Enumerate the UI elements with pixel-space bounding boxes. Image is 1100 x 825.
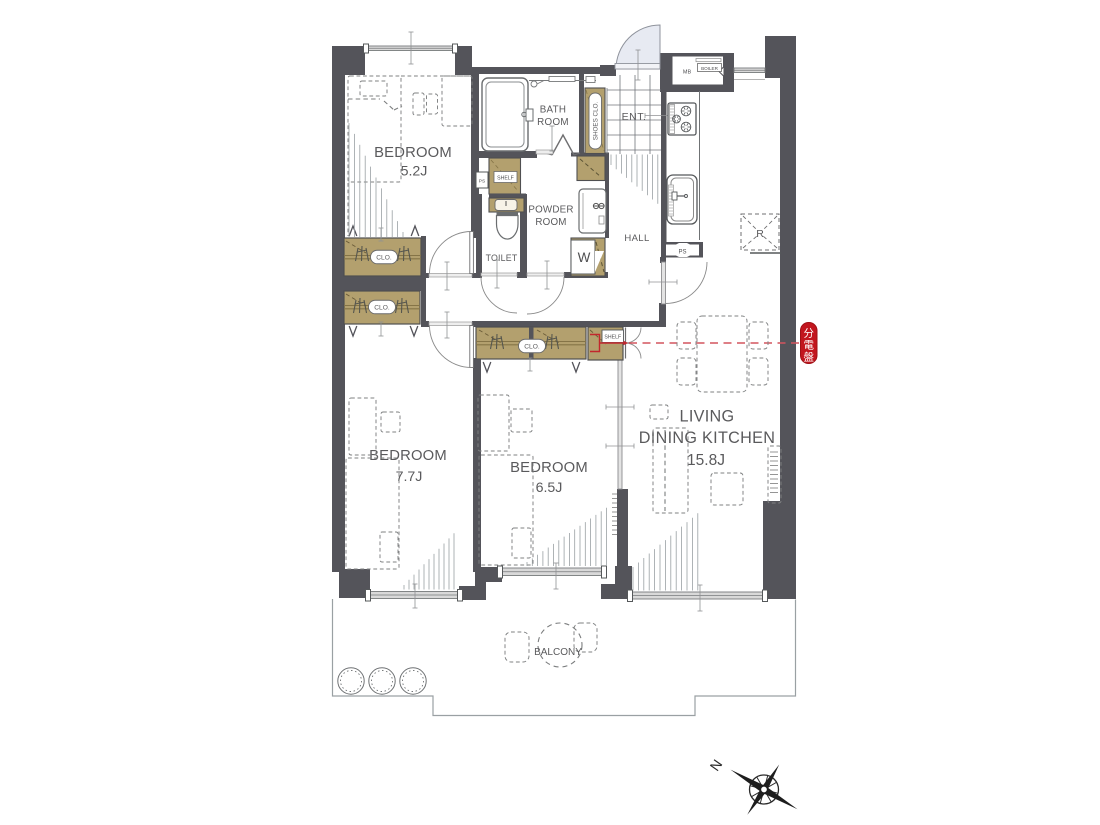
svg-text:7.7J: 7.7J <box>396 469 423 485</box>
svg-text:SHELF: SHELF <box>604 335 621 341</box>
svg-text:DINING KITCHEN: DINING KITCHEN <box>639 429 775 447</box>
svg-text:MB: MB <box>683 70 692 76</box>
svg-text:BEDROOM: BEDROOM <box>369 448 447 464</box>
svg-text:BATH: BATH <box>540 105 567 116</box>
svg-text:PS: PS <box>479 179 485 185</box>
svg-text:5.2J: 5.2J <box>401 164 428 180</box>
svg-text:R: R <box>756 228 764 240</box>
svg-text:SHELF: SHELF <box>497 176 514 182</box>
svg-text:CLO.: CLO. <box>376 254 392 261</box>
svg-text:盤: 盤 <box>804 351 815 364</box>
svg-text:6.5J: 6.5J <box>536 480 563 496</box>
svg-text:BEDROOM: BEDROOM <box>374 145 452 161</box>
svg-text:POWDER: POWDER <box>528 205 573 216</box>
svg-text:BALCONY: BALCONY <box>534 647 582 658</box>
svg-text:SHOES CLO.: SHOES CLO. <box>593 102 600 141</box>
svg-text:ENT.: ENT. <box>622 111 647 123</box>
svg-text:TOILET: TOILET <box>486 253 518 263</box>
svg-text:PS: PS <box>678 250 686 256</box>
svg-text:LIVING: LIVING <box>680 408 735 426</box>
svg-text:電: 電 <box>804 340 815 352</box>
svg-text:15.8J: 15.8J <box>687 452 725 469</box>
svg-text:BEDROOM: BEDROOM <box>510 460 588 476</box>
svg-text:分: 分 <box>804 328 815 340</box>
svg-text:ROOM: ROOM <box>535 217 566 228</box>
svg-text:CLO.: CLO. <box>524 343 540 350</box>
svg-text:BOILER: BOILER <box>701 66 719 71</box>
svg-text:CLO.: CLO. <box>374 304 390 311</box>
svg-text:HALL: HALL <box>624 233 649 244</box>
svg-text:W: W <box>578 250 591 265</box>
